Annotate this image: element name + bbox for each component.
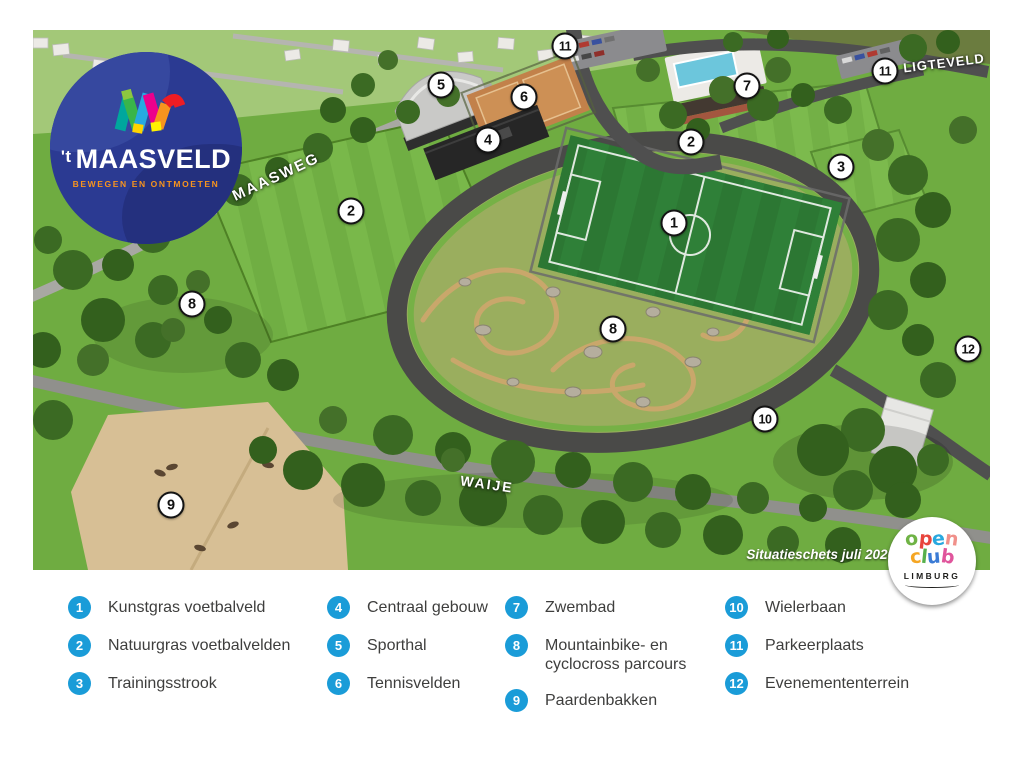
legend-label-line: Natuurgras voetbalvelden xyxy=(108,634,290,657)
logo-title: 'tMAASVELD xyxy=(50,143,242,173)
map-marker-2: 2 xyxy=(338,198,365,225)
legend-item-8: 8Mountainbike- encyclocross parcours xyxy=(505,634,686,674)
legend-number-badge: 6 xyxy=(327,672,350,695)
map-marker-5: 5 xyxy=(428,72,455,99)
legend-number-badge: 8 xyxy=(505,634,528,657)
legend-label: Kunstgras voetbalveld xyxy=(108,596,265,619)
legend-label-line: Tennisvelden xyxy=(367,672,460,695)
legend-number-badge: 1 xyxy=(68,596,91,619)
legend-number-badge: 3 xyxy=(68,672,91,695)
legend-label-line: Mountainbike- en xyxy=(545,636,686,655)
map-marker-11: 11 xyxy=(872,58,899,85)
legend-number-badge: 9 xyxy=(505,689,528,712)
legend-number-badge: 2 xyxy=(68,634,91,657)
legend-label-line: Kunstgras voetbalveld xyxy=(108,596,265,619)
legend-item-1: 1Kunstgras voetbalveld xyxy=(68,596,290,619)
openclub-word-club: club xyxy=(888,549,976,567)
legend-item-7: 7Zwembad xyxy=(505,596,686,619)
legend-item-2: 2Natuurgras voetbalvelden xyxy=(68,634,290,657)
legend-item-5: 5Sporthal xyxy=(327,634,488,657)
legend-label-line: Evenemententerrein xyxy=(765,672,909,695)
openclub-region: LIMBURG xyxy=(888,571,976,581)
legend-label-line: cyclocross parcours xyxy=(545,655,686,674)
legend-label: Evenemententerrein xyxy=(765,672,909,695)
openclub-underline xyxy=(905,582,959,588)
legend-item-11: 11Parkeerplaats xyxy=(725,634,909,657)
legend-label: Natuurgras voetbalvelden xyxy=(108,634,290,657)
legend-label: Sporthal xyxy=(367,634,427,657)
logo-tagline: BEWEGEN EN ONTMOETEN xyxy=(50,179,242,189)
map-marker-8: 8 xyxy=(600,316,627,343)
logo-title-prefix: 't xyxy=(61,147,72,166)
legend-number-badge: 7 xyxy=(505,596,528,619)
maasveld-logo: 'tMAASVELD BEWEGEN EN ONTMOETEN xyxy=(50,52,242,244)
infographic-page: MAASWEGWAIJELIGTEVELD 122345678891011111… xyxy=(0,0,1024,768)
map-marker-10: 10 xyxy=(752,406,779,433)
legend-label: Zwembad xyxy=(545,596,615,619)
legend-item-6: 6Tennisvelden xyxy=(327,672,488,695)
map-marker-8: 8 xyxy=(179,291,206,318)
legend-label-line: Paardenbakken xyxy=(545,689,657,712)
legend-label: Parkeerplaats xyxy=(765,634,864,657)
legend-label: Wielerbaan xyxy=(765,596,846,619)
legend-item-9: 9Paardenbakken xyxy=(505,689,686,712)
logo-title-main: MAASVELD xyxy=(76,144,232,174)
maasveld-logo-mark xyxy=(98,78,194,136)
legend-label-line: Sporthal xyxy=(367,634,427,657)
map-marker-2: 2 xyxy=(678,129,705,156)
legend-column-4: 10Wielerbaan11Parkeerplaats12Evenementen… xyxy=(725,596,909,710)
openclub-letter: b xyxy=(940,548,956,567)
legend-label-line: Wielerbaan xyxy=(765,596,846,619)
legend-label-line: Zwembad xyxy=(545,596,615,619)
map-marker-6: 6 xyxy=(511,84,538,111)
legend-label: Centraal gebouw xyxy=(367,596,488,619)
legend-label: Mountainbike- encyclocross parcours xyxy=(545,634,686,674)
map-marker-1: 1 xyxy=(661,210,688,237)
legend-label-line: Trainingsstrook xyxy=(108,672,217,695)
legend-column-3: 7Zwembad8Mountainbike- encyclocross parc… xyxy=(505,596,686,727)
legend-number-badge: 12 xyxy=(725,672,748,695)
map-caption: Situatieschets juli 2020 xyxy=(746,547,895,562)
legend-item-3: 3Trainingsstrook xyxy=(68,672,290,695)
map-marker-7: 7 xyxy=(734,73,761,100)
legend-label-line: Parkeerplaats xyxy=(765,634,864,657)
legend-column-1: 1Kunstgras voetbalveld2Natuurgras voetba… xyxy=(68,596,290,710)
legend-number-badge: 5 xyxy=(327,634,350,657)
legend-number-badge: 10 xyxy=(725,596,748,619)
legend-item-10: 10Wielerbaan xyxy=(725,596,909,619)
legend-item-4: 4Centraal gebouw xyxy=(327,596,488,619)
legend-label: Tennisvelden xyxy=(367,672,460,695)
legend-number-badge: 11 xyxy=(725,634,748,657)
legend-column-2: 4Centraal gebouw5Sporthal6Tennisvelden xyxy=(327,596,488,710)
map-marker-9: 9 xyxy=(158,492,185,519)
map-marker-11: 11 xyxy=(552,33,579,60)
legend-label-line: Centraal gebouw xyxy=(367,596,488,619)
map-marker-3: 3 xyxy=(828,154,855,181)
map-marker-12: 12 xyxy=(955,336,982,363)
openclub-logo: open club LIMBURG xyxy=(888,517,976,605)
legend-item-12: 12Evenemententerrein xyxy=(725,672,909,695)
legend-number-badge: 4 xyxy=(327,596,350,619)
legend-label: Paardenbakken xyxy=(545,689,657,712)
map-marker-4: 4 xyxy=(475,127,502,154)
legend-label: Trainingsstrook xyxy=(108,672,217,695)
